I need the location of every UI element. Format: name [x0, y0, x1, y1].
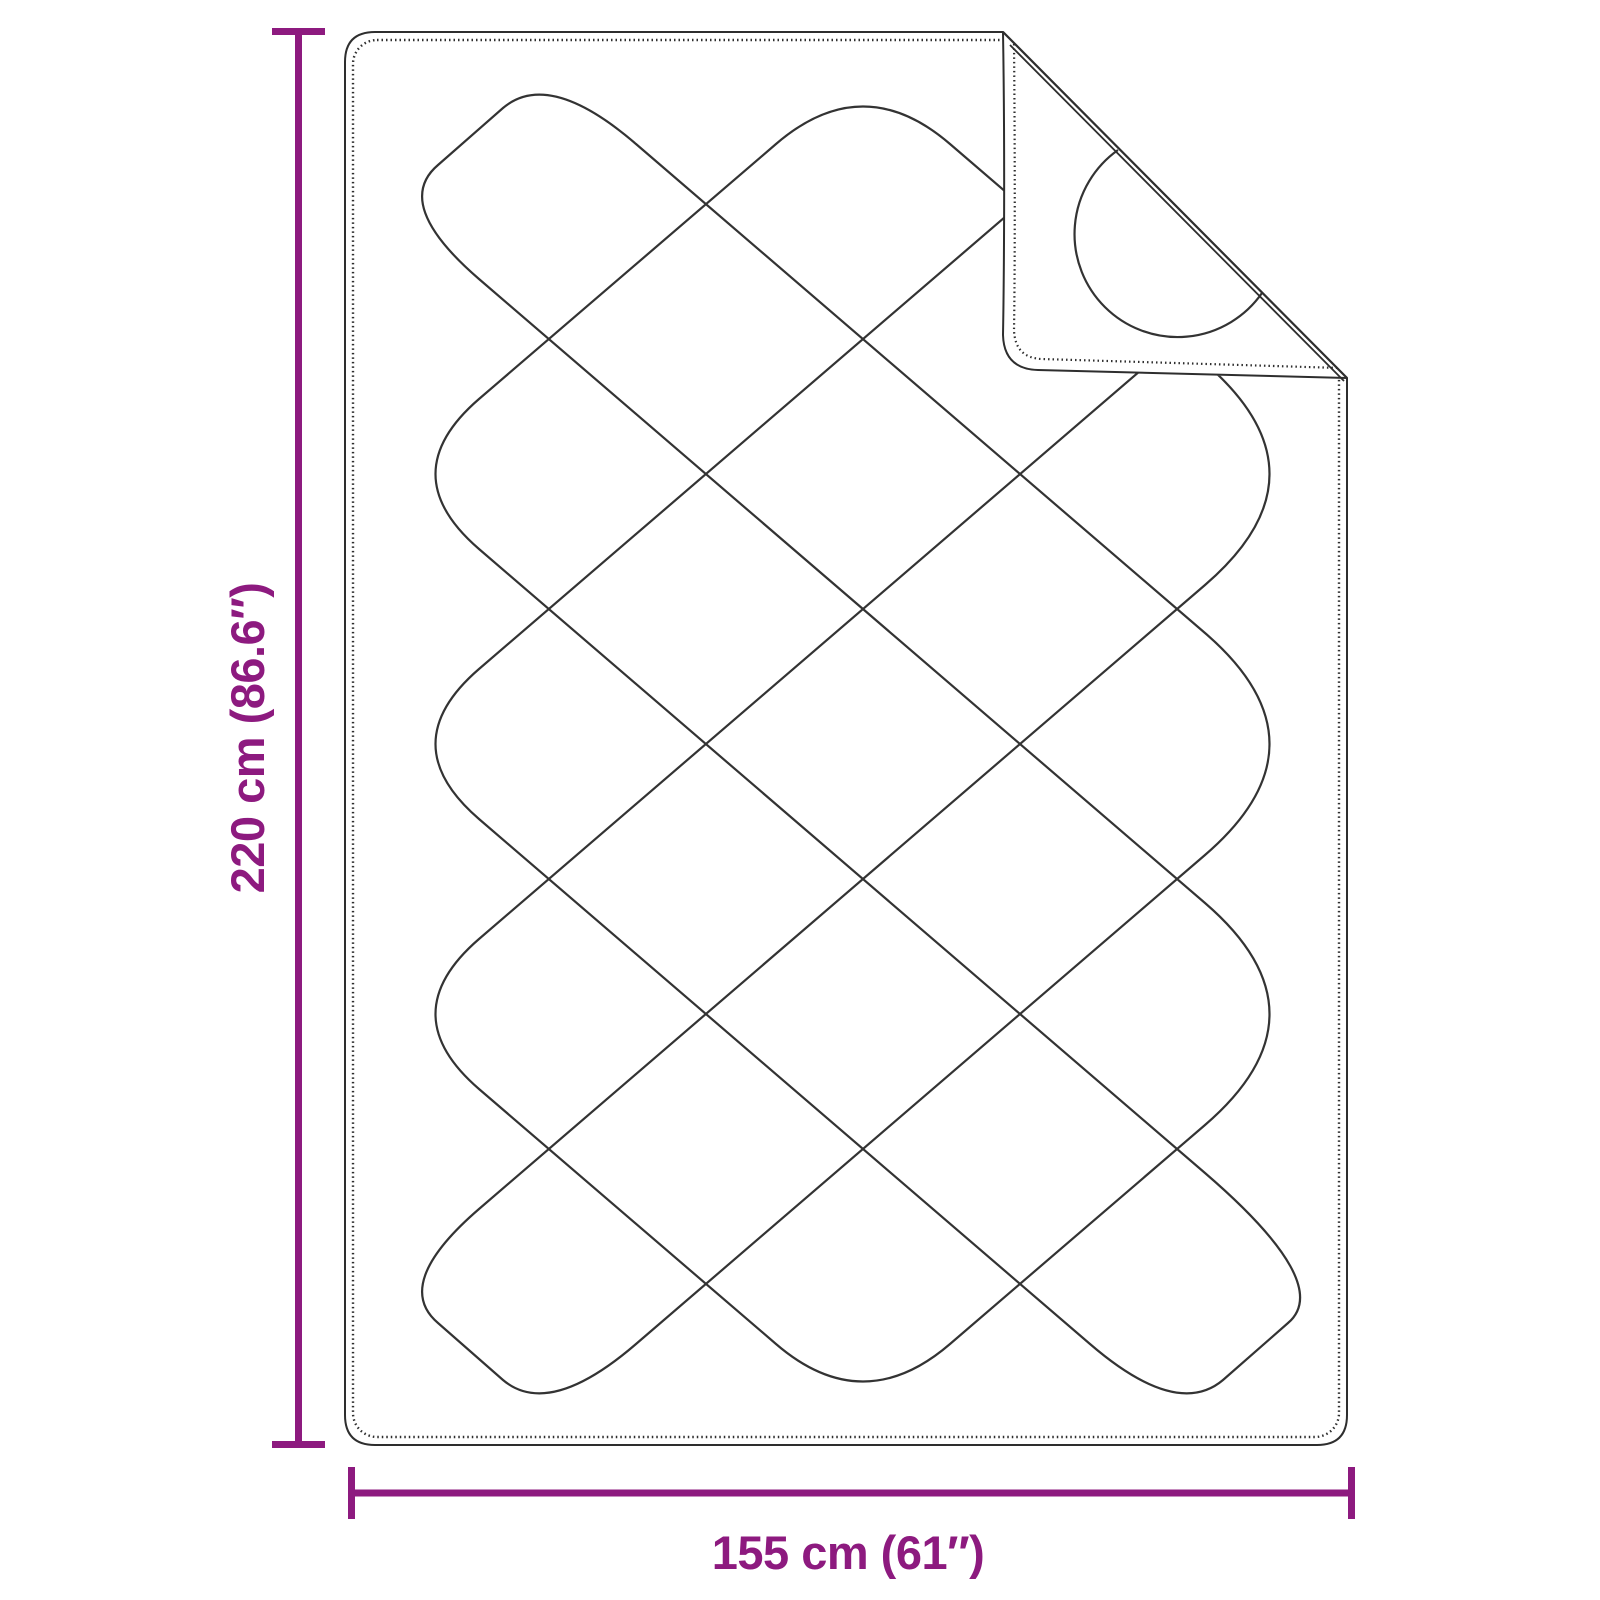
diagram-canvas: 220 cm (86.6″) 155 cm (61″) [0, 0, 1600, 1600]
width-dimension-marker [351, 1467, 1352, 1519]
height-dimension-marker [272, 28, 325, 1448]
width-dimension-label: 155 cm (61″) [548, 1522, 1148, 1584]
height-dimension-label: 220 cm (86.6″) [217, 438, 279, 1038]
